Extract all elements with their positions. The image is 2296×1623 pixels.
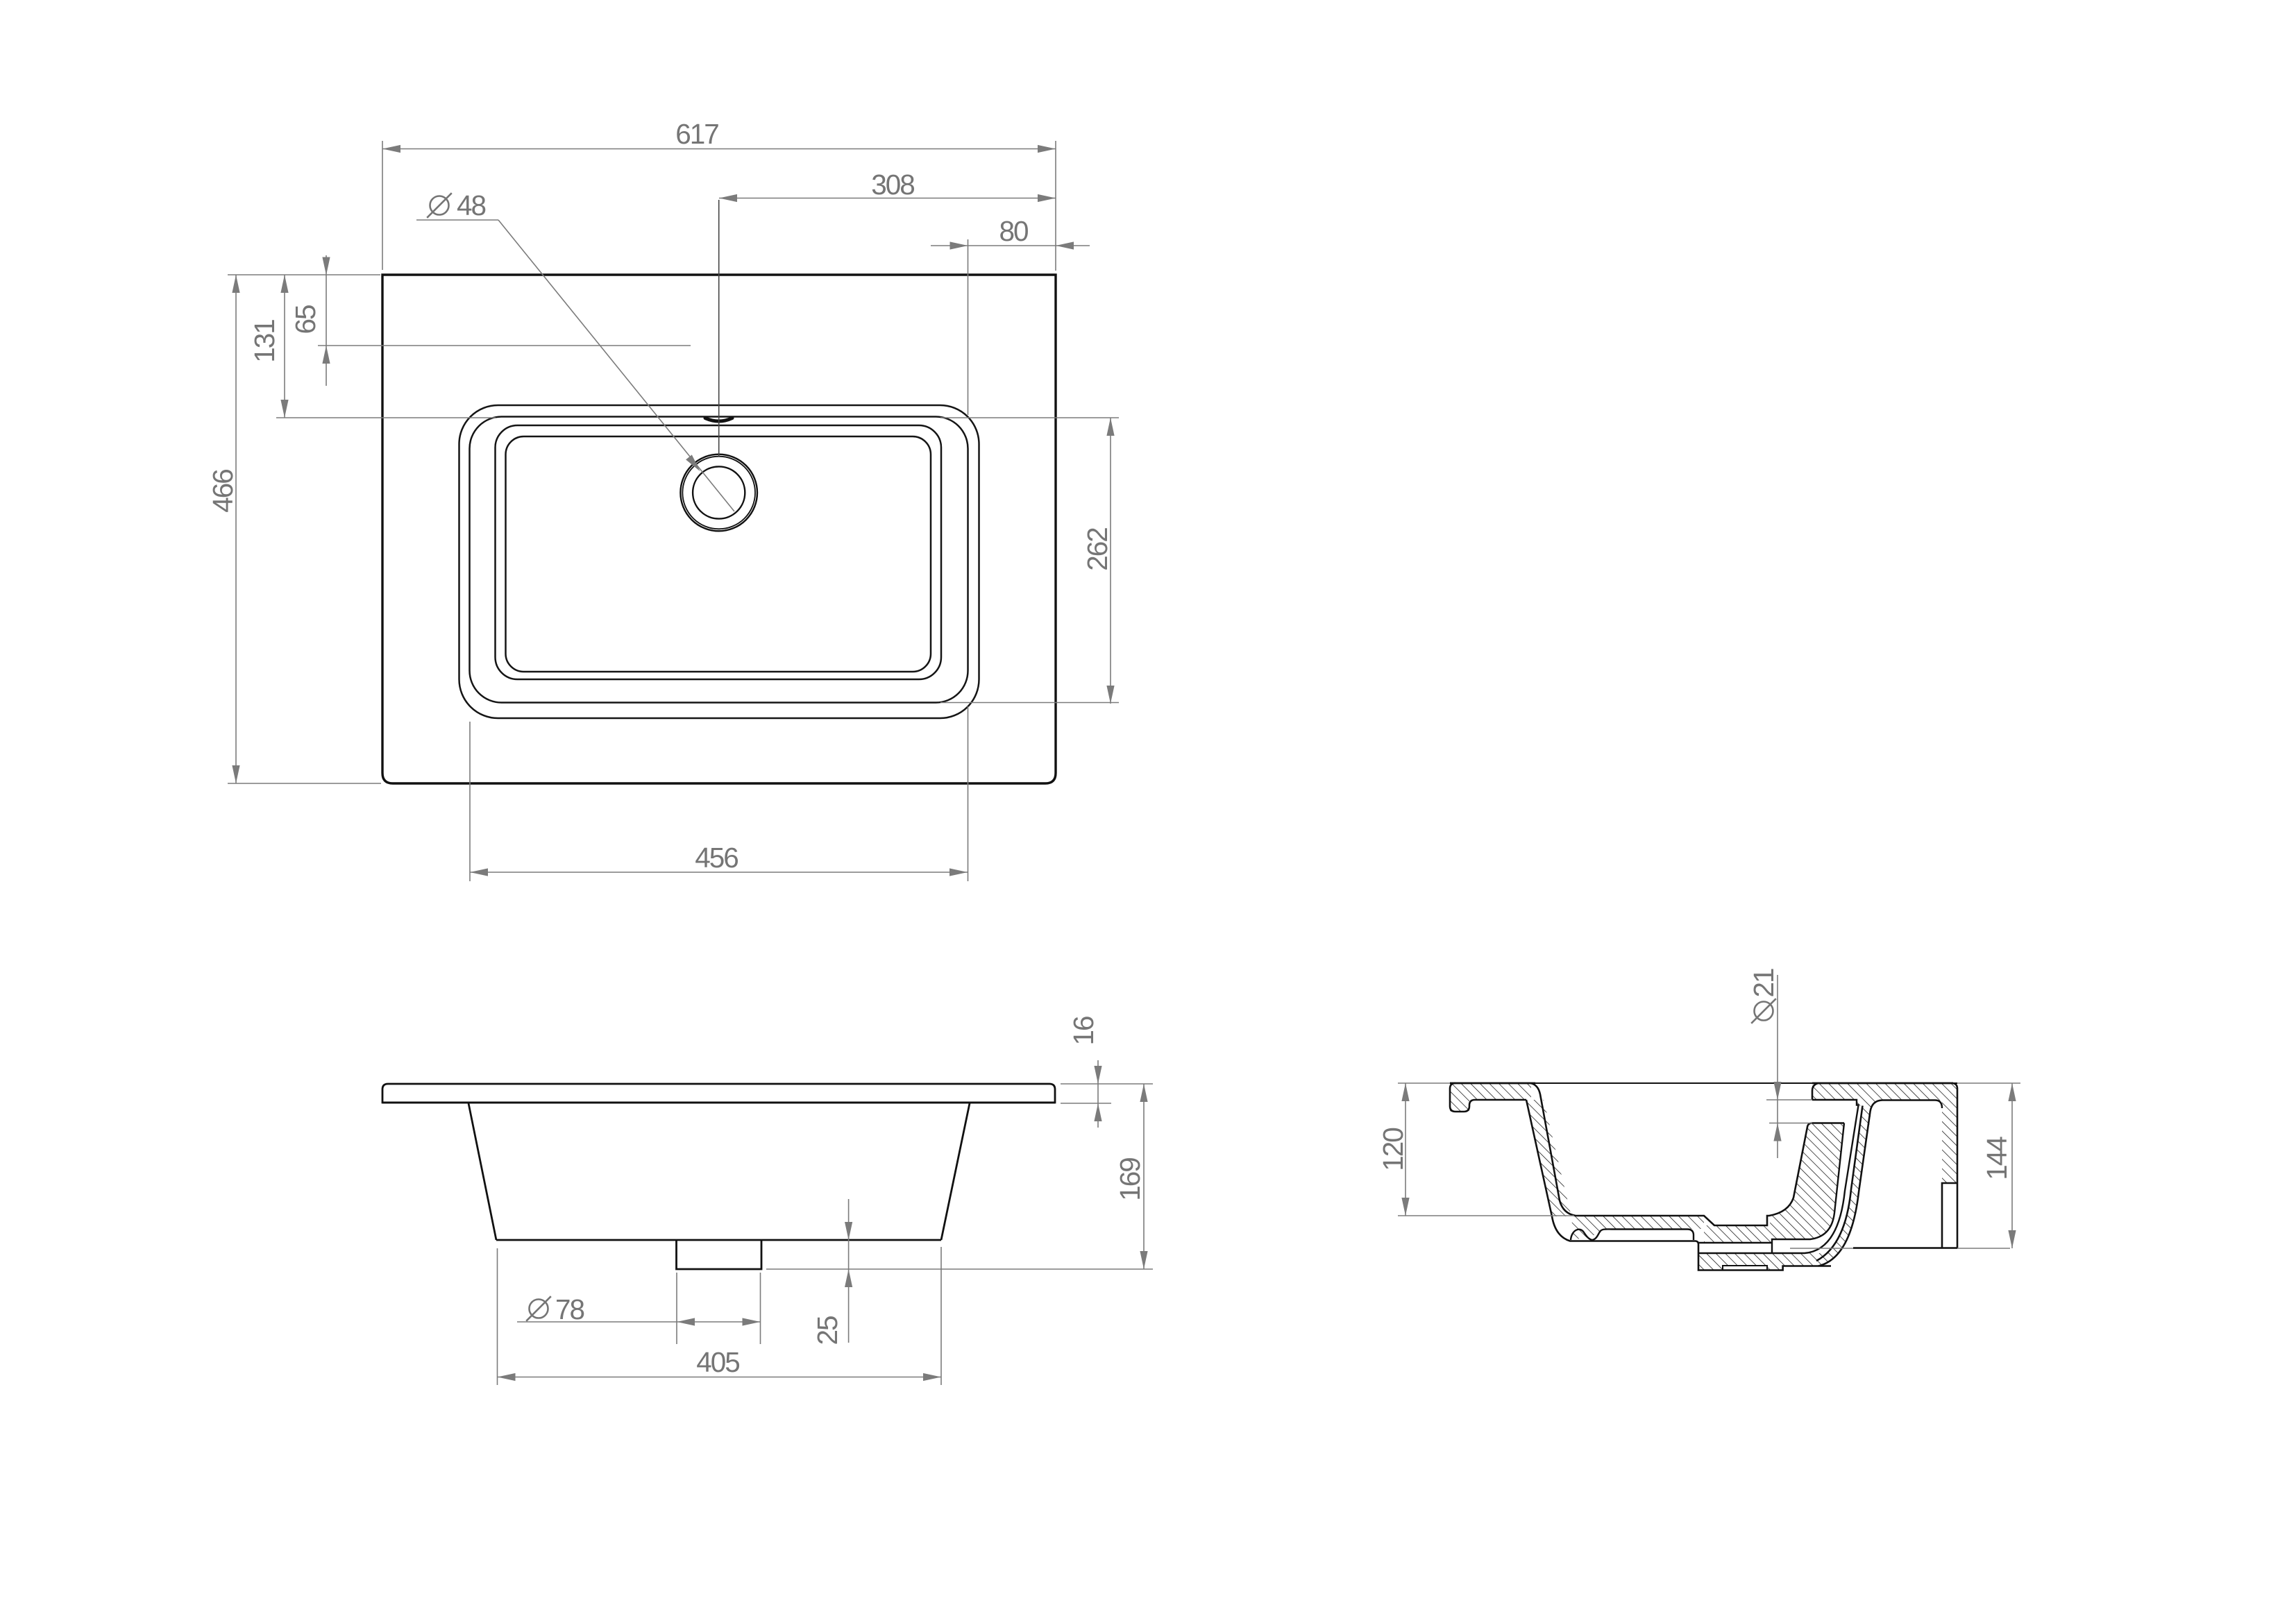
svg-text:262: 262 — [1081, 528, 1113, 571]
svg-text:131: 131 — [248, 320, 280, 363]
svg-text:21: 21 — [1748, 969, 1780, 998]
svg-text:78: 78 — [555, 1293, 584, 1325]
svg-text:466: 466 — [207, 470, 239, 513]
svg-text:405: 405 — [696, 1346, 739, 1378]
svg-text:48: 48 — [457, 189, 486, 221]
svg-text:65: 65 — [289, 305, 321, 334]
svg-text:169: 169 — [1114, 1158, 1146, 1201]
svg-text:617: 617 — [675, 118, 718, 150]
svg-text:456: 456 — [695, 842, 738, 874]
svg-text:144: 144 — [1981, 1137, 2013, 1180]
svg-text:120: 120 — [1377, 1128, 1409, 1171]
svg-text:16: 16 — [1067, 1017, 1099, 1046]
svg-text:25: 25 — [811, 1316, 843, 1345]
svg-text:80: 80 — [999, 215, 1028, 247]
svg-text:308: 308 — [871, 169, 914, 201]
